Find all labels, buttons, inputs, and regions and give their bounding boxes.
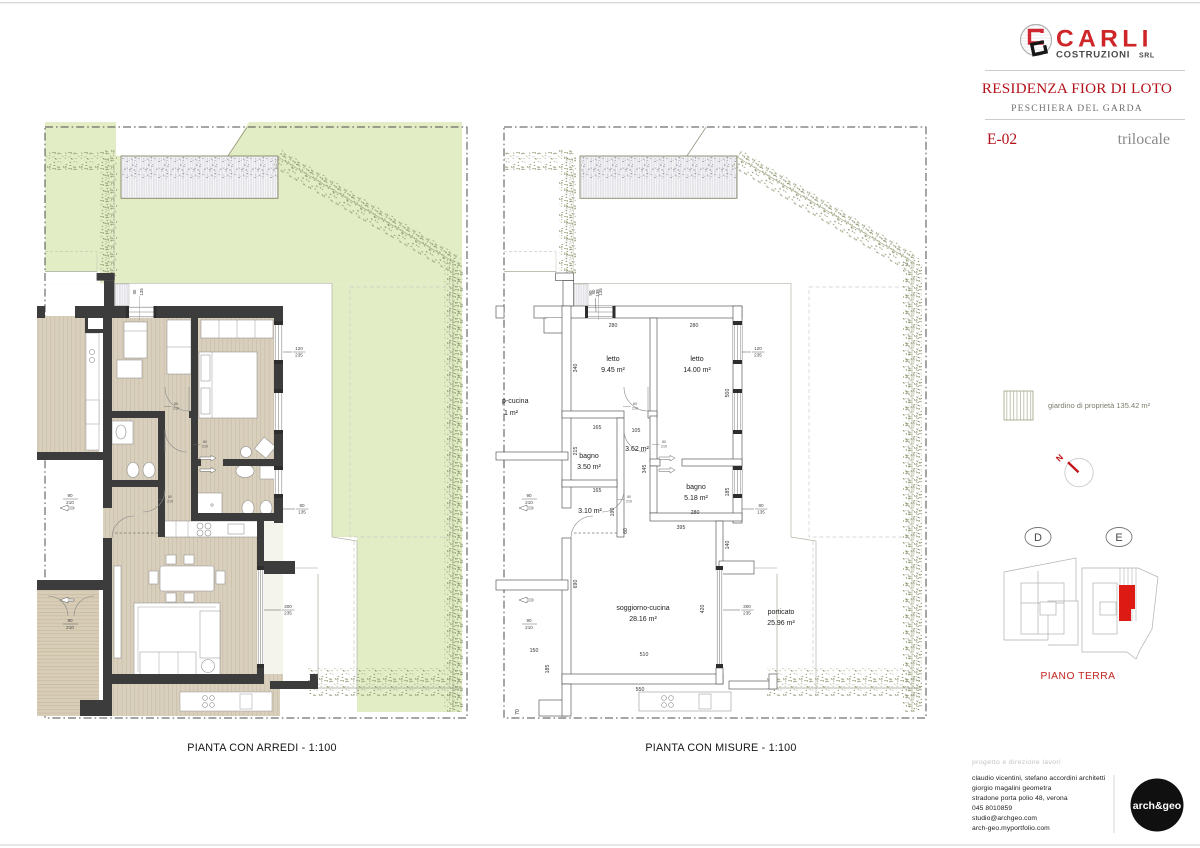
svg-text:80: 80 xyxy=(758,503,764,508)
svg-text:PESCHIERA DEL GARDA: PESCHIERA DEL GARDA xyxy=(1011,103,1143,114)
svg-text:235: 235 xyxy=(295,352,303,357)
svg-text:CARLI: CARLI xyxy=(1056,26,1153,53)
svg-text:3.10 m²: 3.10 m² xyxy=(578,508,602,515)
svg-text:80: 80 xyxy=(203,440,207,444)
svg-text:90: 90 xyxy=(67,493,73,498)
svg-text:25.96 m²: 25.96 m² xyxy=(767,620,795,627)
svg-text:bagno: bagno xyxy=(686,484,706,491)
svg-text:porticato: porticato xyxy=(768,609,795,616)
svg-text:3.62 m²: 3.62 m² xyxy=(625,446,649,453)
svg-text:80: 80 xyxy=(633,402,637,406)
svg-text:210: 210 xyxy=(661,445,667,449)
svg-text:165: 165 xyxy=(593,488,602,494)
svg-text:210: 210 xyxy=(167,500,173,504)
svg-text:280: 280 xyxy=(691,510,700,516)
svg-text:90: 90 xyxy=(526,618,532,623)
svg-text:arch-geo.myportfolio.com: arch-geo.myportfolio.com xyxy=(972,825,1050,832)
svg-text:210: 210 xyxy=(173,407,179,411)
svg-text:210: 210 xyxy=(66,500,74,505)
svg-text:420: 420 xyxy=(700,605,706,614)
svg-text:210: 210 xyxy=(525,625,533,630)
svg-text:135: 135 xyxy=(757,509,765,514)
svg-text:PIANTA CON MISURE - 1:100: PIANTA CON MISURE - 1:100 xyxy=(645,742,796,754)
svg-text:165: 165 xyxy=(593,425,602,431)
svg-text:studio@archgeo.com: studio@archgeo.com xyxy=(972,815,1037,822)
svg-text:120: 120 xyxy=(295,346,303,351)
svg-text:PIANO TERRA: PIANO TERRA xyxy=(1040,671,1115,682)
svg-text:690: 690 xyxy=(573,580,579,589)
svg-text:soggiorno-cucina: soggiorno-cucina xyxy=(616,605,669,612)
svg-text:14.00 m²: 14.00 m² xyxy=(683,367,711,374)
svg-text:280: 280 xyxy=(690,323,699,329)
svg-text:giardino di proprietà 135.42 m: giardino di proprietà 135.42 m² xyxy=(1048,401,1151,410)
svg-text:135: 135 xyxy=(595,289,600,297)
svg-text:510: 510 xyxy=(640,652,649,658)
svg-text:80: 80 xyxy=(168,495,172,499)
svg-text:185: 185 xyxy=(545,665,551,674)
svg-text:5.18 m²: 5.18 m² xyxy=(684,495,708,502)
svg-text:345: 345 xyxy=(642,465,648,474)
svg-text:210: 210 xyxy=(525,500,533,505)
svg-text:300: 300 xyxy=(284,604,292,609)
svg-text:90: 90 xyxy=(67,618,73,623)
svg-text:300: 300 xyxy=(743,604,751,609)
svg-text:135: 135 xyxy=(139,288,144,296)
svg-text:claudio vicentini, stefano acc: claudio vicentini, stefano accordini arc… xyxy=(972,775,1106,782)
svg-text:letto: letto xyxy=(606,356,619,363)
svg-text:210: 210 xyxy=(626,500,632,504)
svg-text:1 m²: 1 m² xyxy=(504,410,519,417)
svg-text:3.50 m²: 3.50 m² xyxy=(577,464,601,471)
svg-text:395: 395 xyxy=(677,525,686,531)
svg-text:stradone porta polio 48, veron: stradone porta polio 48, verona xyxy=(972,795,1068,802)
svg-text:E: E xyxy=(1115,532,1122,544)
svg-text:280: 280 xyxy=(609,323,618,329)
svg-text:340: 340 xyxy=(573,364,579,373)
svg-text:letto: letto xyxy=(690,356,703,363)
svg-text:p-cucina: p-cucina xyxy=(502,398,529,405)
svg-text:500: 500 xyxy=(725,389,731,398)
svg-text:28.16 m²: 28.16 m² xyxy=(629,616,657,623)
svg-text:9.45 m²: 9.45 m² xyxy=(601,367,625,374)
svg-text:60: 60 xyxy=(623,528,629,534)
svg-text:RESIDENZA FIOR DI LOTO: RESIDENZA FIOR DI LOTO xyxy=(982,80,1172,97)
svg-text:210: 210 xyxy=(66,625,74,630)
svg-text:235: 235 xyxy=(284,610,292,615)
svg-text:235: 235 xyxy=(754,352,762,357)
svg-text:235: 235 xyxy=(743,610,751,615)
svg-text:D: D xyxy=(1034,532,1042,544)
svg-text:80: 80 xyxy=(299,503,305,508)
svg-text:045 8010859: 045 8010859 xyxy=(972,805,1012,812)
svg-text:215: 215 xyxy=(573,447,579,456)
svg-text:90: 90 xyxy=(132,289,137,294)
svg-text:E-02: E-02 xyxy=(987,131,1017,148)
svg-text:SRL: SRL xyxy=(1139,53,1155,60)
svg-text:trilocale: trilocale xyxy=(1118,131,1170,148)
svg-text:135: 135 xyxy=(298,509,306,514)
svg-text:105: 105 xyxy=(632,428,641,434)
svg-text:80: 80 xyxy=(662,440,666,444)
svg-text:70: 70 xyxy=(515,709,521,715)
svg-text:150: 150 xyxy=(530,648,539,654)
svg-text:120: 120 xyxy=(754,346,762,351)
svg-text:190: 190 xyxy=(610,508,616,517)
svg-text:90: 90 xyxy=(526,493,532,498)
svg-text:giorgio magalini geometra: giorgio magalini geometra xyxy=(972,785,1052,792)
svg-text:arch&geo: arch&geo xyxy=(1133,800,1181,812)
svg-text:80: 80 xyxy=(627,495,631,499)
svg-text:90: 90 xyxy=(588,290,593,296)
svg-text:progetto e direzione lavori: progetto e direzione lavori xyxy=(972,759,1061,766)
svg-text:185: 185 xyxy=(725,488,731,497)
svg-text:140: 140 xyxy=(725,541,731,550)
svg-text:80: 80 xyxy=(174,402,178,406)
svg-text:210: 210 xyxy=(632,407,638,411)
svg-text:210: 210 xyxy=(202,445,208,449)
svg-text:COSTRUZIONI: COSTRUZIONI xyxy=(1056,50,1130,61)
svg-text:bagno: bagno xyxy=(579,453,599,460)
svg-text:PIANTA CON ARREDI - 1:100: PIANTA CON ARREDI - 1:100 xyxy=(187,742,336,754)
